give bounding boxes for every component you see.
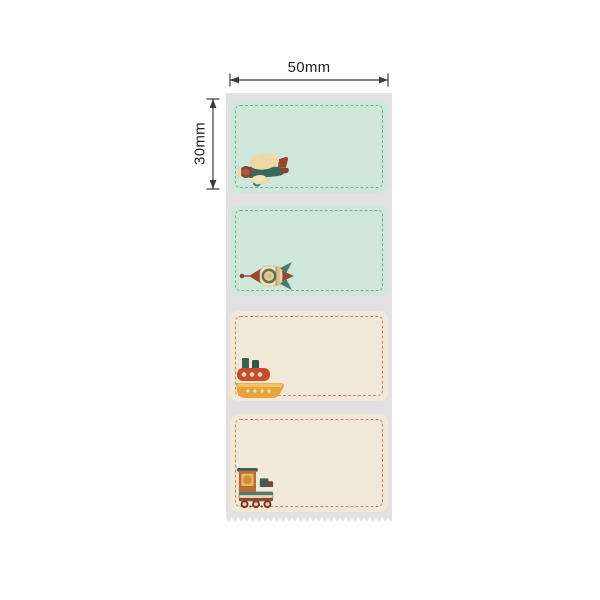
rocket-icon bbox=[239, 259, 295, 293]
train-icon bbox=[236, 465, 276, 509]
label-sticker-airplane bbox=[230, 100, 388, 193]
width-dimension-arrow bbox=[226, 72, 392, 88]
height-dimension-arrow bbox=[205, 95, 221, 193]
label-sticker-rocket bbox=[230, 205, 388, 296]
product-image: 50mm 30mm bbox=[0, 0, 600, 600]
label-sticker-train bbox=[230, 414, 388, 512]
perforated-edge bbox=[226, 517, 392, 523]
airplane-icon bbox=[237, 151, 291, 187]
boat-icon bbox=[235, 357, 285, 399]
label-sticker-boat bbox=[230, 311, 388, 401]
